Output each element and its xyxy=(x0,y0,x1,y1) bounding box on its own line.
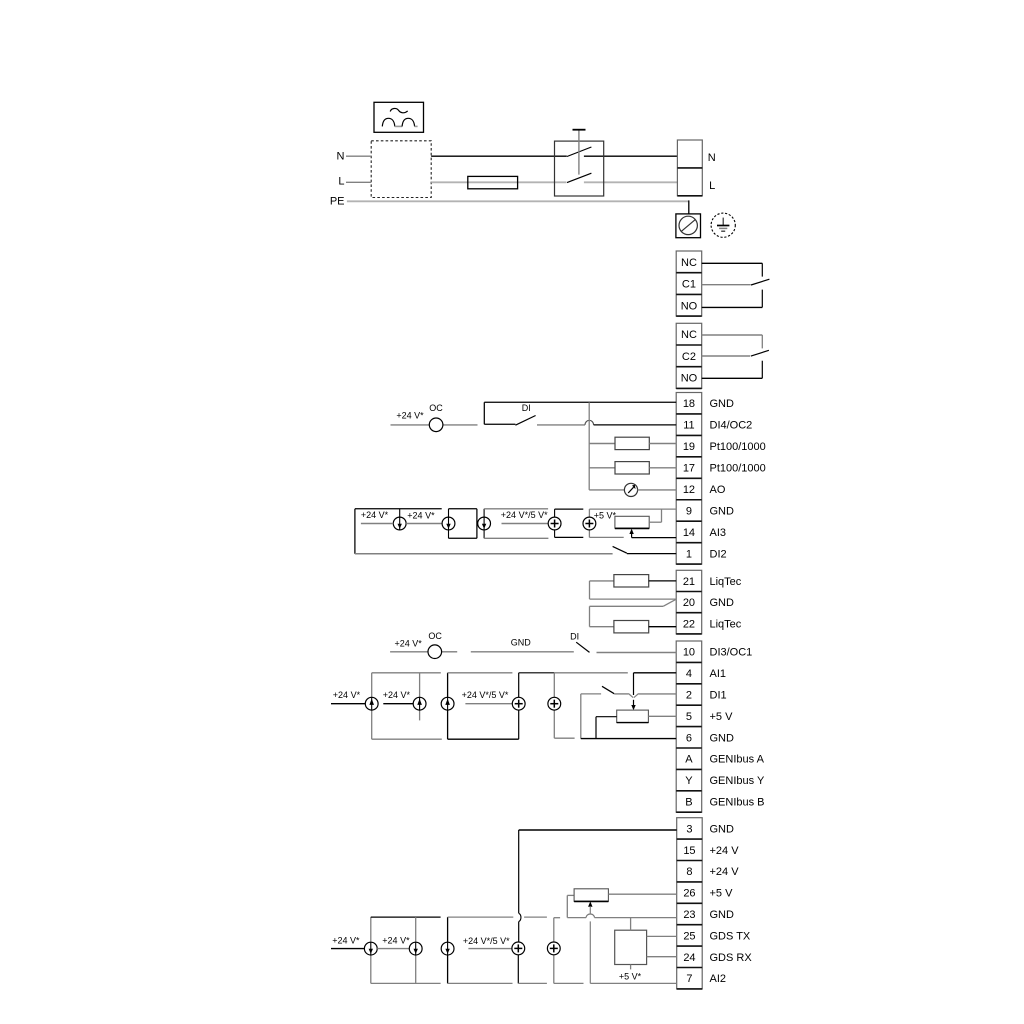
svg-text:8: 8 xyxy=(686,866,692,878)
svg-text:+24 V*: +24 V* xyxy=(383,690,411,700)
svg-text:12: 12 xyxy=(683,484,695,496)
svg-text:3: 3 xyxy=(686,823,692,835)
svg-text:6: 6 xyxy=(686,732,692,744)
svg-text:GDS RX: GDS RX xyxy=(710,952,753,964)
svg-text:21: 21 xyxy=(683,576,695,588)
svg-text:N: N xyxy=(337,150,345,162)
svg-text:GND: GND xyxy=(710,732,735,744)
svg-text:+24 V*/5 V*: +24 V*/5 V* xyxy=(463,936,510,946)
svg-text:9: 9 xyxy=(686,505,692,517)
svg-text:AI3: AI3 xyxy=(710,527,727,539)
svg-text:L: L xyxy=(338,175,344,187)
svg-text:+24 V*: +24 V* xyxy=(333,690,361,700)
svg-text:C1: C1 xyxy=(682,279,696,291)
svg-text:25: 25 xyxy=(683,930,695,942)
svg-text:OC: OC xyxy=(428,631,442,641)
svg-text:19: 19 xyxy=(683,441,695,453)
svg-text:+24 V*/5 V*: +24 V*/5 V* xyxy=(462,690,509,700)
svg-text:+24 V: +24 V xyxy=(710,866,740,878)
svg-text:PE: PE xyxy=(330,196,345,208)
svg-text:GND: GND xyxy=(710,505,735,517)
svg-text:+24 V*: +24 V* xyxy=(395,639,423,649)
svg-text:+5 V: +5 V xyxy=(710,711,734,723)
svg-text:GENIbus Y: GENIbus Y xyxy=(710,775,765,787)
svg-text:+24 V*: +24 V* xyxy=(332,935,360,945)
svg-text:DI2: DI2 xyxy=(710,548,727,560)
svg-text:5: 5 xyxy=(686,711,692,723)
svg-text:AI1: AI1 xyxy=(710,668,727,680)
svg-text:N: N xyxy=(708,152,716,164)
svg-text:GENIbus A: GENIbus A xyxy=(710,754,765,766)
svg-text:NC: NC xyxy=(681,329,697,341)
svg-text:A: A xyxy=(685,754,693,766)
svg-text:DI3/OC1: DI3/OC1 xyxy=(710,647,753,659)
svg-text:GND: GND xyxy=(710,597,735,609)
svg-text:+5 V*: +5 V* xyxy=(594,511,617,521)
svg-text:+24 V*: +24 V* xyxy=(361,510,389,520)
svg-text:DI4/OC2: DI4/OC2 xyxy=(710,420,753,432)
svg-text:10: 10 xyxy=(683,647,695,659)
svg-text:17: 17 xyxy=(683,463,695,475)
svg-text:LiqTec: LiqTec xyxy=(710,576,742,588)
svg-text:7: 7 xyxy=(686,973,692,985)
svg-text:NC: NC xyxy=(681,257,697,269)
svg-text:18: 18 xyxy=(683,398,695,410)
svg-text:+24 V*: +24 V* xyxy=(382,935,410,945)
svg-text:11: 11 xyxy=(683,420,694,432)
svg-text:14: 14 xyxy=(683,527,695,539)
svg-text:22: 22 xyxy=(683,618,695,630)
svg-text:DI: DI xyxy=(522,403,531,413)
svg-text:+5 V: +5 V xyxy=(710,888,734,900)
svg-text:GDS TX: GDS TX xyxy=(710,930,751,942)
svg-text:NO: NO xyxy=(681,373,698,385)
svg-text:+24 V: +24 V xyxy=(710,845,740,857)
svg-text:GND: GND xyxy=(710,909,735,921)
svg-text:B: B xyxy=(685,797,692,809)
svg-text:GND: GND xyxy=(710,398,735,410)
svg-text:GND: GND xyxy=(710,823,735,835)
svg-text:Y: Y xyxy=(685,775,693,787)
svg-text:+5 V*: +5 V* xyxy=(619,972,642,982)
svg-text:15: 15 xyxy=(683,845,695,857)
svg-text:LiqTec: LiqTec xyxy=(710,618,742,630)
svg-text:20: 20 xyxy=(683,597,695,609)
svg-text:+24 V*: +24 V* xyxy=(396,410,424,420)
svg-text:DI: DI xyxy=(570,631,579,641)
svg-text:NO: NO xyxy=(681,300,698,312)
svg-text:AO: AO xyxy=(710,484,726,496)
svg-text:23: 23 xyxy=(683,909,695,921)
svg-text:Pt100/1000: Pt100/1000 xyxy=(710,463,766,475)
svg-text:DI1: DI1 xyxy=(710,690,727,702)
svg-text:C2: C2 xyxy=(682,351,696,363)
svg-text:1: 1 xyxy=(686,548,692,560)
svg-text:4: 4 xyxy=(686,668,692,680)
svg-text:24: 24 xyxy=(683,952,695,964)
svg-text:OC: OC xyxy=(429,403,443,413)
svg-text:GENIbus B: GENIbus B xyxy=(710,797,765,809)
svg-text:GND: GND xyxy=(511,637,532,647)
svg-text:+24 V*: +24 V* xyxy=(407,511,435,521)
svg-text:Pt100/1000: Pt100/1000 xyxy=(710,441,766,453)
svg-text:26: 26 xyxy=(683,888,695,900)
svg-text:+24 V*/5 V*: +24 V*/5 V* xyxy=(501,510,548,520)
svg-text:AI2: AI2 xyxy=(710,973,727,985)
svg-text:L: L xyxy=(709,180,715,192)
svg-text:2: 2 xyxy=(686,690,692,702)
